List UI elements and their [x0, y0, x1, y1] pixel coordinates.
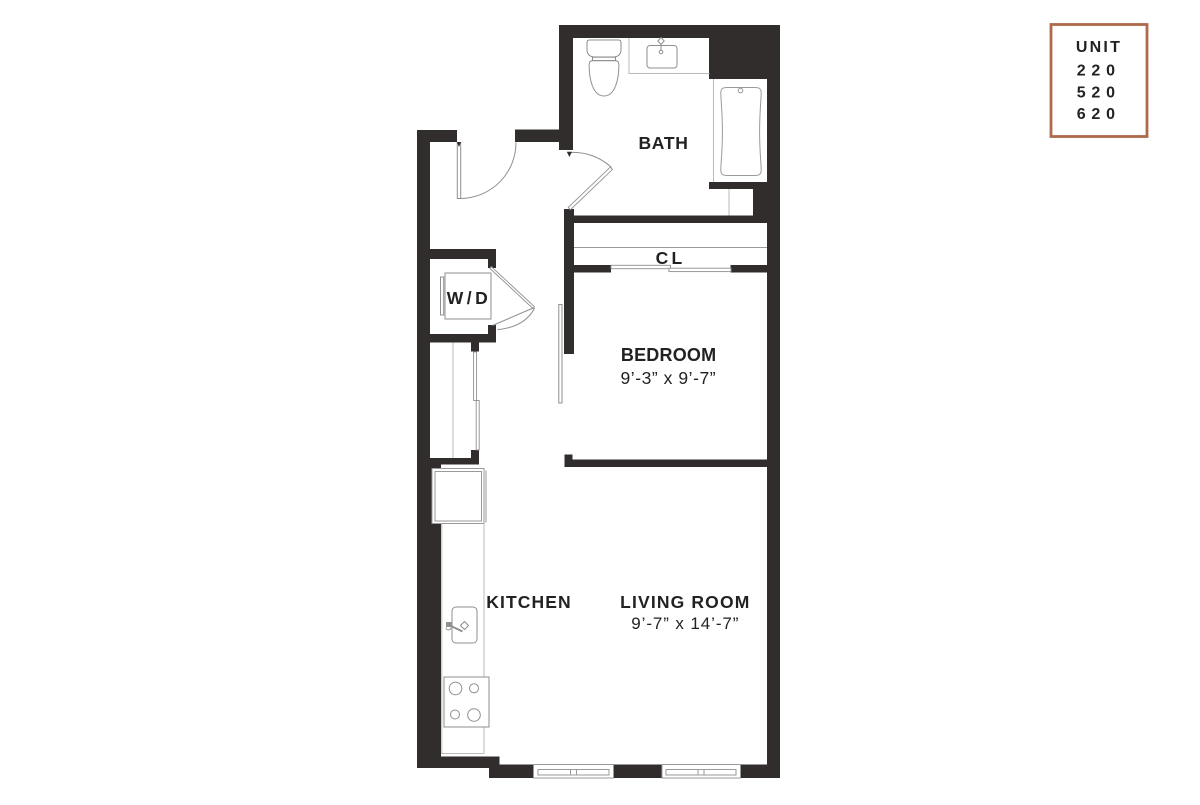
svg-text:520: 520: [1077, 84, 1121, 101]
svg-text:W/D: W/D: [447, 288, 492, 308]
svg-text:9’-7” x 14’-7”: 9’-7” x 14’-7”: [631, 614, 739, 633]
svg-text:CL: CL: [656, 248, 686, 268]
svg-text:BATH: BATH: [638, 133, 688, 153]
svg-text:BEDROOM: BEDROOM: [621, 345, 716, 365]
svg-text:UNIT: UNIT: [1076, 39, 1122, 56]
svg-text:9’-3” x 9’-7”: 9’-3” x 9’-7”: [620, 368, 716, 388]
svg-text:220: 220: [1077, 62, 1121, 79]
svg-text:KITCHEN: KITCHEN: [486, 592, 571, 612]
svg-text:620: 620: [1077, 106, 1121, 123]
svg-text:LIVING ROOM: LIVING ROOM: [620, 592, 750, 612]
